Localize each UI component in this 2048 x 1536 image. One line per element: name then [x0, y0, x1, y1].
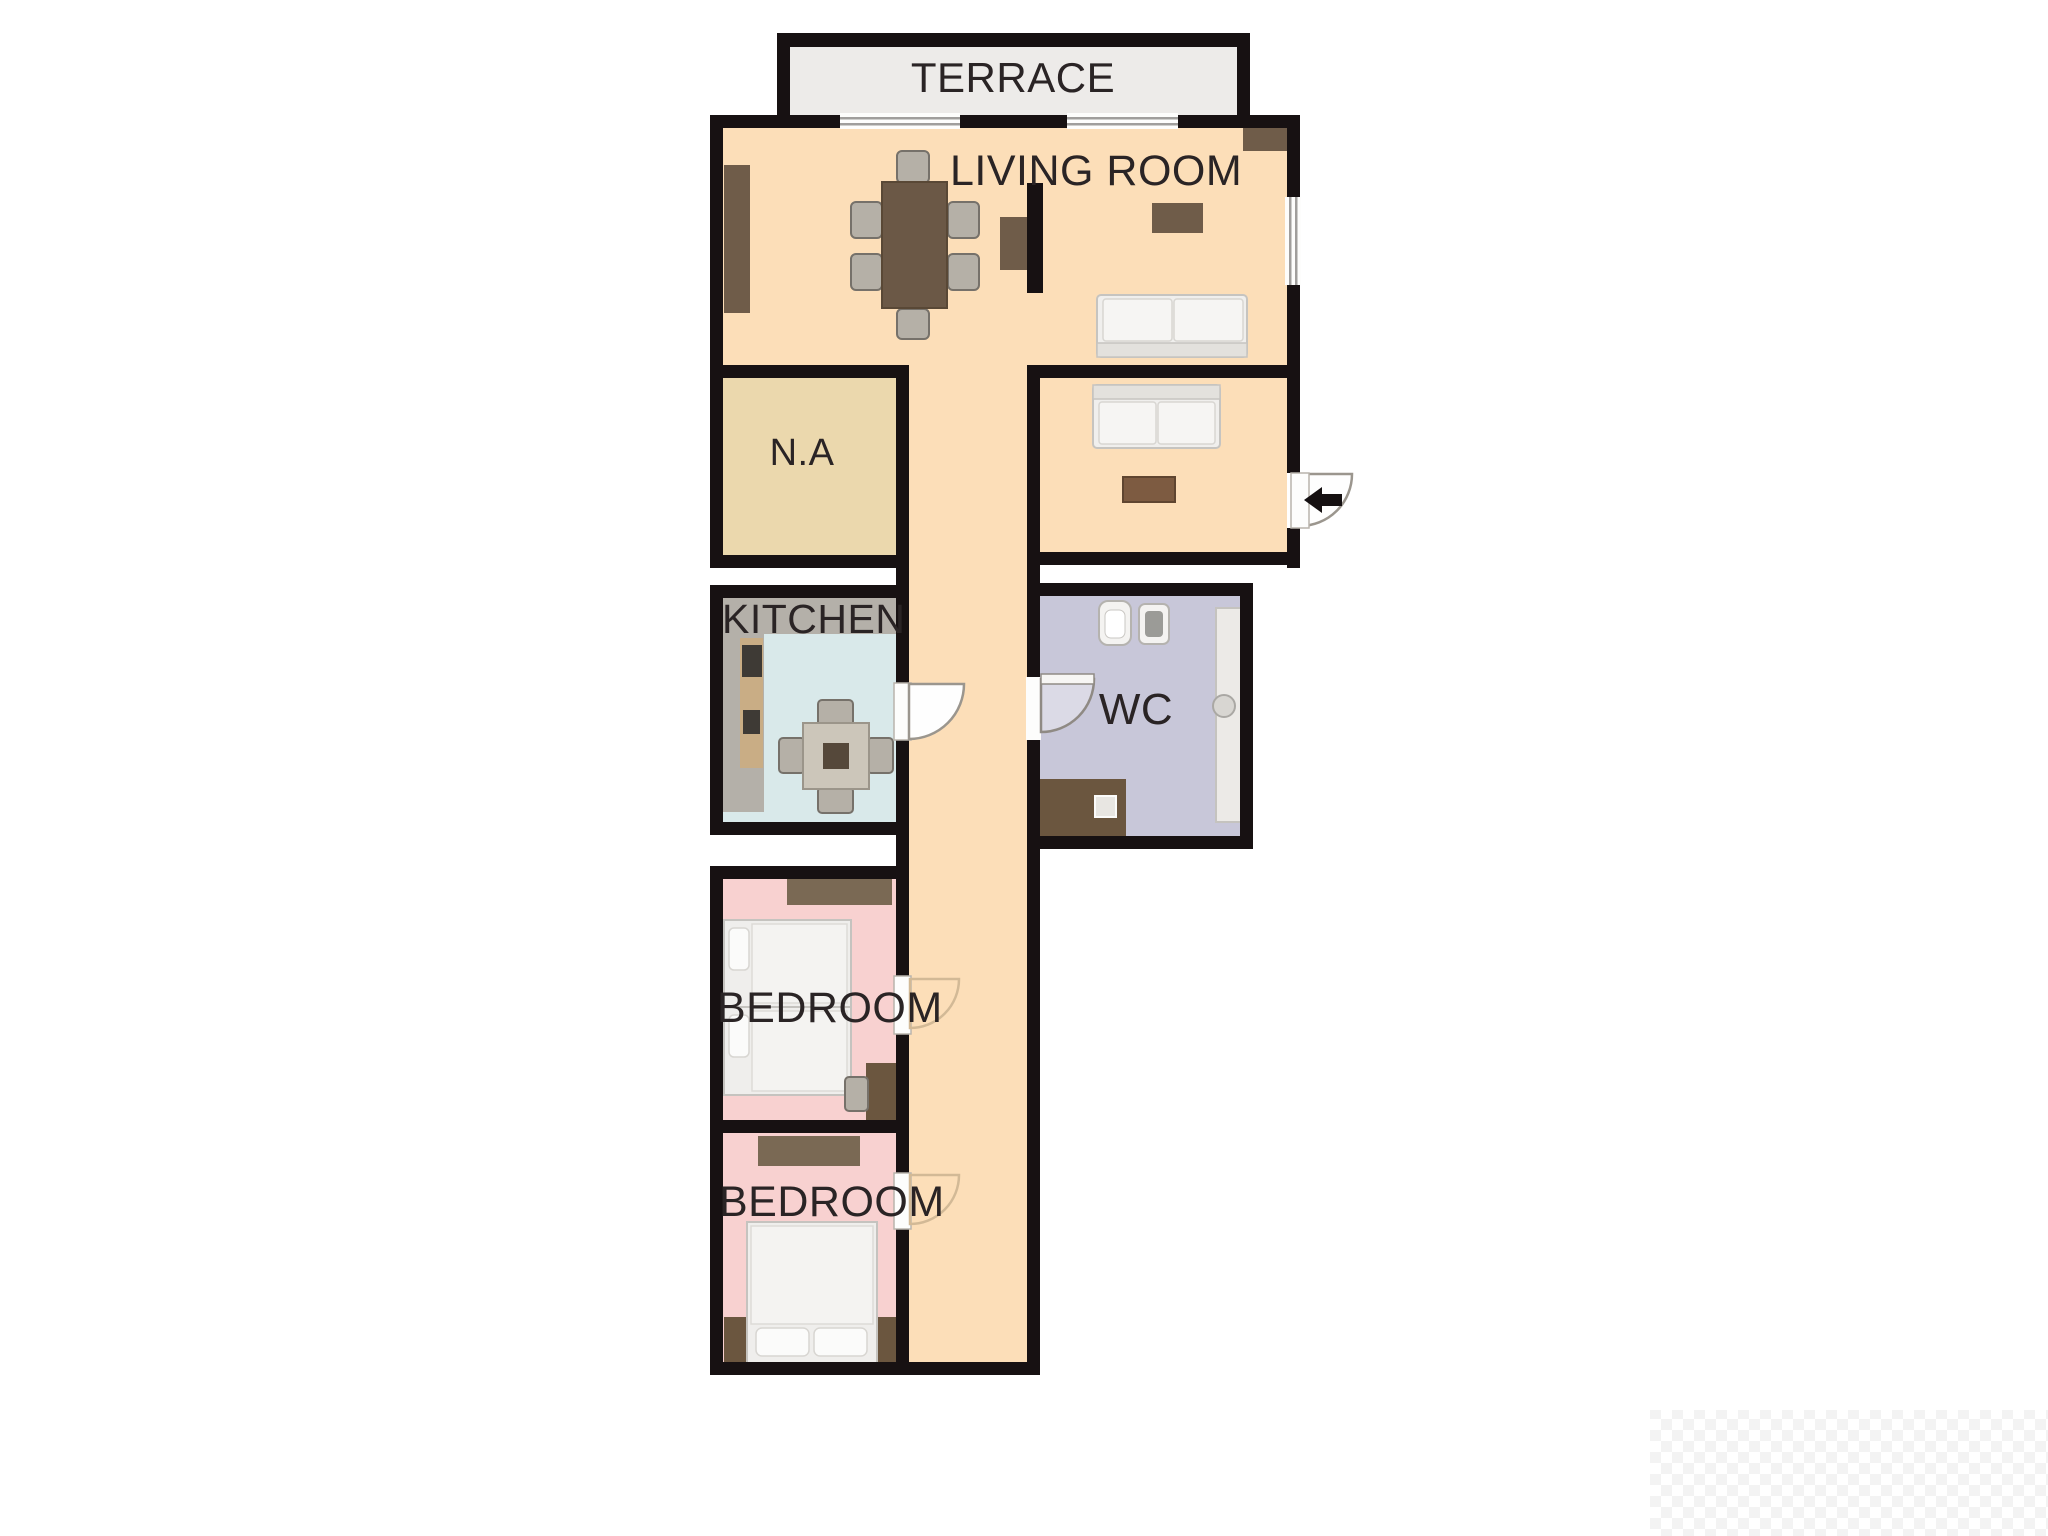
nightstand-right [877, 1317, 897, 1363]
bed-double-blanket [751, 1226, 873, 1324]
floor-plan-canvas: TERRACE LIVING ROOM N.A KITCHEN WC BEDRO… [0, 0, 2048, 1536]
living-wall-top-c [1178, 115, 1300, 128]
na-room-label: N.A [770, 432, 835, 474]
terrace-wall-top [777, 33, 1250, 47]
toilet-bowl [1105, 610, 1125, 638]
dining-chair-right-1 [948, 202, 979, 238]
kitchen-chair-left [779, 738, 805, 773]
dining-chair-left-1 [851, 202, 882, 238]
kitchen-chair-bottom [818, 787, 853, 813]
terrace-window-left [840, 113, 960, 129]
terrace-wall-right [1237, 33, 1250, 127]
kitchen-label: KITCHEN [722, 596, 905, 642]
wc-label: WC [1099, 685, 1173, 734]
kitchen-wall-bottom [710, 822, 909, 835]
hall-table [1123, 477, 1175, 502]
corridor-wall-left-d [896, 1228, 909, 1375]
na-wall-bottom [710, 555, 908, 568]
vanity-sink [1095, 796, 1116, 817]
bedroom-1-wardrobe [787, 879, 892, 905]
side-window-glass [1285, 197, 1301, 285]
sofa-large-cushion-left [1103, 299, 1172, 341]
kitchen-chair-right [867, 738, 893, 773]
sofa-small [1093, 385, 1220, 448]
wc-wall-right [1240, 583, 1253, 849]
corridor-wall-right-b [1027, 740, 1040, 1375]
sofa-large-backrest [1097, 343, 1247, 357]
dining-chair-left-2 [851, 254, 882, 290]
shower-knob [1213, 695, 1235, 717]
watermark-pattern [1650, 1410, 2048, 1536]
terrace-window-right-glass [1067, 113, 1178, 129]
kitchen-table-center [823, 743, 849, 769]
stove [742, 645, 762, 677]
sofa-large-cushion-right [1174, 299, 1243, 341]
bedroom-1-wall-top [710, 866, 909, 879]
corridor-wall-left-b [896, 740, 909, 976]
side-window-frame-1 [1289, 197, 1292, 285]
tv-stand [1000, 217, 1030, 270]
na-wall-top [710, 365, 908, 378]
sofa-small-cushion-right [1158, 402, 1215, 444]
tv-wall [1027, 183, 1043, 293]
sofa-large [1097, 295, 1247, 357]
corridor-wall-right-a [1027, 365, 1040, 677]
bedroom-2-label: BEDROOM [719, 1178, 945, 1226]
wc-wall-bottom [1027, 836, 1253, 849]
terrace-window-right-frame-1 [1067, 117, 1178, 120]
side-table [1152, 203, 1203, 233]
living-room-side-window [1285, 197, 1301, 285]
terrace-window-right-frame-2 [1067, 123, 1178, 126]
bedroom-2-wardrobe [758, 1136, 860, 1166]
terrace-window-left-glass [840, 113, 960, 129]
bedroom-2-wall-left [710, 1120, 723, 1375]
entrance-door [1291, 473, 1352, 528]
oven [743, 710, 760, 734]
dining-chair-bottom [897, 309, 929, 339]
terrace-window-left-frame-2 [840, 123, 960, 126]
hall-wall-bottom [1028, 552, 1300, 565]
sofa-small-cushion-left [1099, 402, 1156, 444]
terrace-window-right [1067, 113, 1178, 129]
wc-door-gap [1026, 677, 1041, 740]
living-wall-left [710, 115, 723, 568]
terrace-wall-left [777, 33, 790, 127]
terrace-label: TERRACE [911, 54, 1115, 101]
dining-chair-right-2 [948, 254, 979, 290]
living-wall-right-b [1287, 285, 1300, 473]
sideboard [724, 165, 750, 313]
living-room-label: LIVING ROOM [950, 147, 1242, 195]
bedroom-1-label: BEDROOM [717, 984, 943, 1032]
wc-door-leaf [1041, 674, 1094, 684]
bedroom-1-chair [845, 1077, 868, 1111]
bed-double-pillow-left [756, 1328, 809, 1356]
bedrooms-shared-wall [710, 1120, 909, 1133]
living-wall-top-a [710, 115, 840, 128]
side-window-frame-2 [1295, 197, 1298, 285]
terrace-window-left-frame-1 [840, 117, 960, 120]
dining-chair-top [897, 151, 929, 183]
corner-shelf [1243, 127, 1289, 151]
corridor-wall-left-c [896, 1034, 909, 1174]
bed-single-1-pillow [729, 928, 749, 970]
living-wall-top-b [960, 115, 1067, 128]
bedroom-1-desk [866, 1063, 896, 1120]
dining-table [882, 182, 947, 308]
plan-wall-bottom [710, 1362, 1039, 1375]
bed-double-pillow-right [814, 1328, 867, 1356]
living-wall-right-a [1287, 115, 1300, 197]
wc-wall-top [1027, 583, 1253, 596]
hall-partial-wall [1028, 365, 1300, 378]
nightstand-left [724, 1317, 747, 1363]
wc-sink-basin [1145, 611, 1163, 637]
corridor-floor [909, 555, 1027, 1362]
sofa-small-backrest [1093, 385, 1220, 399]
